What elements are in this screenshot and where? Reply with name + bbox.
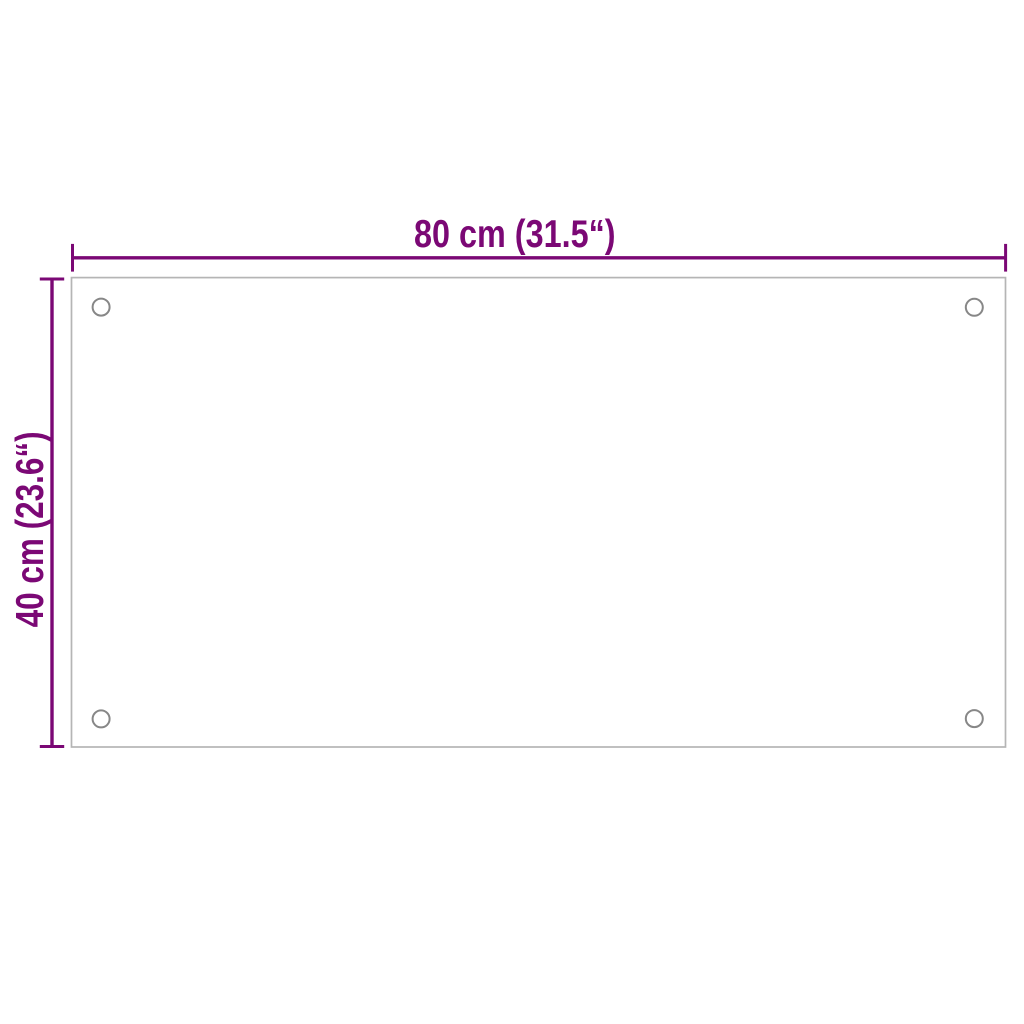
svg-text:40 cm (23.6“): 40 cm (23.6“) xyxy=(9,431,52,627)
svg-text:80 cm (31.5“): 80 cm (31.5“) xyxy=(414,213,616,256)
